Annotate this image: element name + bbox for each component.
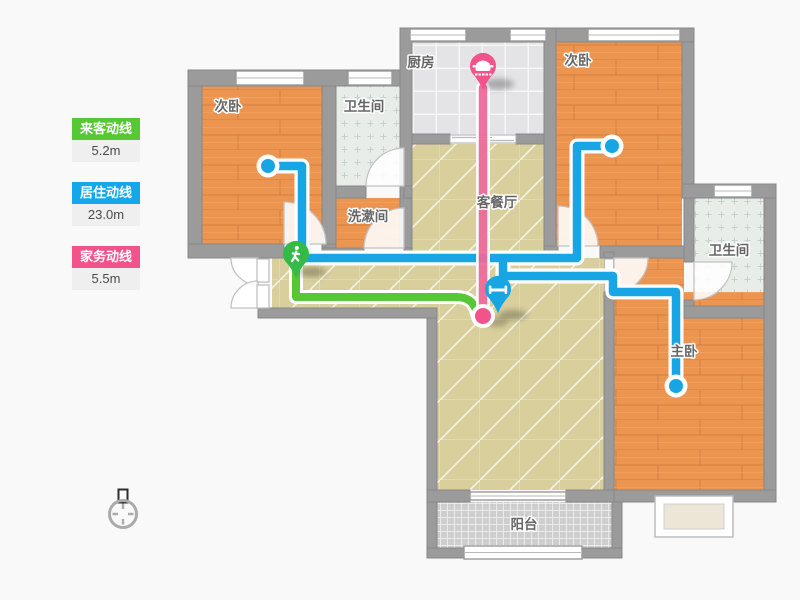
floor-plan-page: 来客动线 5.2m 居住动线 23.0m 家务动线 5.5m	[0, 0, 800, 600]
window	[236, 71, 304, 85]
compass-icon	[110, 490, 137, 528]
balcony-label: 阳台	[511, 516, 538, 532]
window	[510, 29, 546, 41]
floor-plan-canvas: 次卧 卫生间 厨房 次卧 客餐厅 洗漱间 卫生间 主卧 阳台	[0, 0, 800, 600]
pin-shadow	[298, 267, 326, 277]
entrance-door-leaf	[257, 259, 269, 282]
bedroom-right-label: 次卧	[565, 52, 593, 68]
bay-window	[655, 496, 733, 537]
pin-shadow	[499, 310, 527, 320]
window	[410, 29, 466, 41]
window	[348, 71, 392, 85]
entrance-door-leaf	[257, 285, 269, 308]
master-bedroom-floor	[614, 292, 764, 490]
sliding-window	[470, 492, 566, 500]
pin-shadow	[484, 79, 514, 90]
window	[588, 29, 680, 41]
master-bedroom-label: 主卧	[671, 343, 699, 359]
kitchen-label: 厨房	[408, 54, 435, 70]
bathroom-top-label: 卫生间	[344, 98, 385, 114]
bedroom-left-label: 次卧	[215, 98, 242, 114]
window	[464, 546, 582, 559]
entrance-door-leaf-arc	[231, 281, 258, 308]
washroom-label: 洗漱间	[348, 208, 389, 224]
bathroom-right-label: 卫生间	[709, 242, 750, 258]
window	[714, 185, 752, 197]
living-dining-label: 客餐厅	[476, 194, 518, 210]
